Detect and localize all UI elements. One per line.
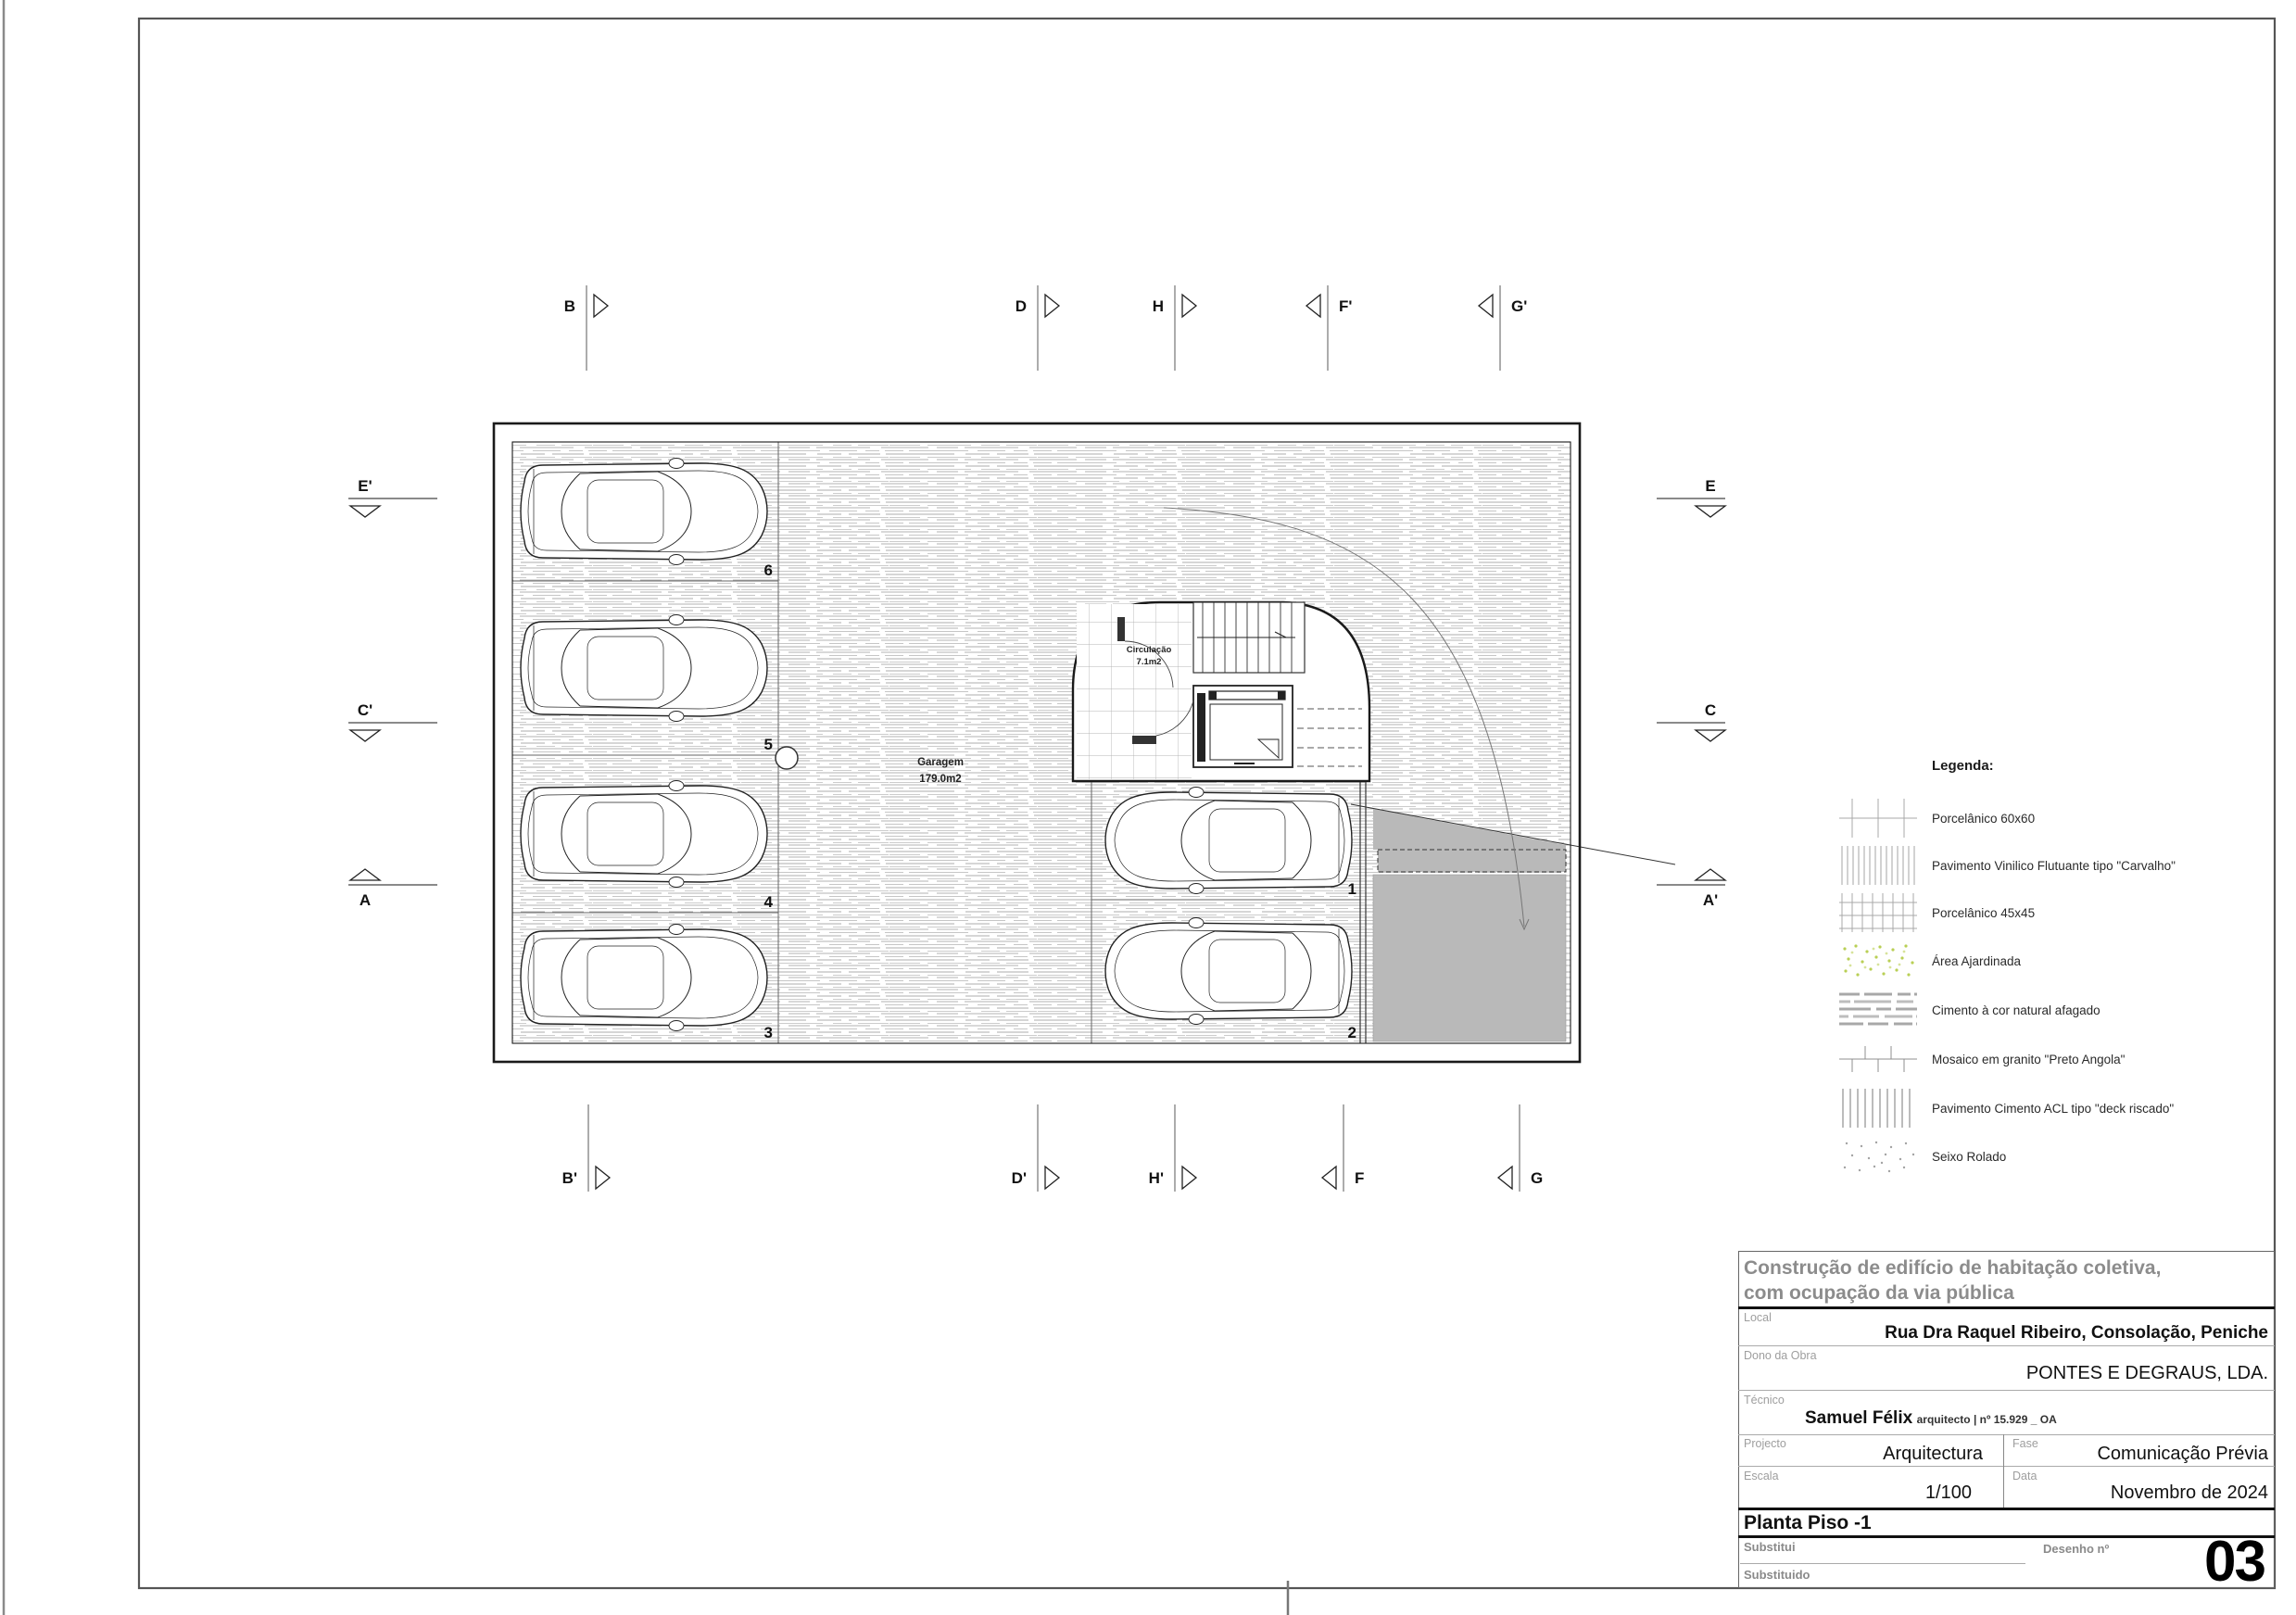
section-marker-E-prime: E': [348, 477, 437, 517]
sheet-title: Planta Piso -1: [1744, 1512, 1872, 1534]
legend-item-label: Área Ajardinada: [1932, 954, 2021, 968]
scale-label: Escala: [1744, 1470, 1779, 1483]
car-spot-5: [521, 615, 767, 722]
local-label: Local: [1744, 1311, 1772, 1324]
owner-label: Dono da Obra: [1744, 1349, 1817, 1362]
drawing-sheet: 6 5 4 3 1 2 Garagem 179.0m2: [0, 0, 2296, 1615]
section-marker-F-prime: F': [1306, 285, 1352, 371]
svg-text:D': D': [1012, 1169, 1027, 1187]
spot-number: 4: [764, 893, 774, 911]
section-marker-B: B: [564, 285, 608, 371]
replaced-label: Substituido: [1744, 1568, 1810, 1582]
stair-core: Circulação 7.1m2: [1073, 602, 1369, 781]
car-spot-6: [521, 459, 767, 565]
legend-swatch-vinyl-plank: [1839, 846, 1917, 885]
svg-text:A: A: [360, 891, 371, 909]
section-marker-D-prime: D': [1012, 1104, 1059, 1192]
door-leaf: [1132, 736, 1156, 744]
svg-text:C': C': [358, 701, 372, 719]
section-marker-E: E: [1657, 477, 1725, 517]
section-marker-H: H: [1153, 285, 1196, 371]
section-marker-H-prime: H': [1149, 1104, 1196, 1192]
svg-text:G': G': [1511, 297, 1527, 315]
local-value: Rua Dra Raquel Ribeiro, Consolação, Peni…: [1807, 1323, 2268, 1344]
garage-label: Garagem: [917, 757, 964, 768]
svg-text:F: F: [1355, 1169, 1364, 1187]
svg-text:H: H: [1153, 297, 1164, 315]
drawing-number-label: Desenho nº: [2043, 1542, 2109, 1556]
legend-item-label: Porcelânico 60x60: [1932, 812, 2035, 826]
date-value: Novembro de 2024: [2038, 1483, 2268, 1504]
date-label: Data: [2012, 1470, 2037, 1483]
legend-item-label: Pavimento Cimento ACL tipo "deck riscado…: [1932, 1102, 2174, 1116]
car-spot-1: [1105, 788, 1352, 894]
svg-text:G: G: [1531, 1169, 1543, 1187]
legend-item-label: Seixo Rolado: [1932, 1150, 2006, 1164]
svg-text:B: B: [564, 297, 575, 315]
spot-number: 1: [1348, 880, 1356, 898]
legend-swatch-deck: [1839, 1089, 1917, 1128]
technician-label: Técnico: [1744, 1394, 1785, 1407]
spot-number: 2: [1348, 1024, 1356, 1041]
section-marker-A-prime: A': [1657, 869, 1725, 909]
section-marker-C-prime: C': [348, 701, 437, 741]
spot-number: 3: [764, 1024, 773, 1041]
section-marker-F: F: [1322, 1104, 1364, 1192]
legend-swatch-cement: [1839, 990, 1917, 1029]
svg-text:D: D: [1016, 297, 1027, 315]
column: [776, 747, 798, 769]
car-spot-4: [521, 781, 767, 888]
legend-swatch-garden: [1839, 941, 1917, 980]
circulation-area-label: 7.1m2: [1137, 657, 1162, 667]
project-label: Projecto: [1744, 1437, 1786, 1450]
section-marker-B-prime: B': [562, 1104, 610, 1192]
legend-swatch-pebble: [1839, 1137, 1917, 1176]
legend-item-label: Cimento à cor natural afagado: [1932, 1003, 2100, 1017]
car-spot-2: [1105, 918, 1352, 1025]
section-marker-G-prime: G': [1479, 285, 1527, 371]
spot-number: 6: [764, 561, 773, 579]
drawing-number-value: 03: [2131, 1536, 2264, 1588]
car-spot-3: [521, 925, 767, 1031]
section-marker-G: G: [1498, 1104, 1543, 1192]
section-marker-D: D: [1016, 285, 1059, 371]
elevator: [1193, 686, 1293, 767]
technician-credentials: arquitecto | nº 15.929 _ OA: [1917, 1413, 2057, 1426]
svg-text:C: C: [1705, 701, 1716, 719]
technician-name: Samuel Félix: [1805, 1408, 1912, 1428]
section-marker-A: A: [348, 869, 437, 909]
legend-item-label: Porcelânico 45x45: [1932, 906, 2035, 920]
svg-text:E': E': [358, 477, 372, 495]
owner-value: PONTES E DEGRAUS, LDA.: [1807, 1363, 2268, 1384]
project-value: Arquitectura: [1805, 1444, 1983, 1465]
svg-text:A': A': [1703, 891, 1718, 909]
legend-title: Legenda:: [1932, 758, 1994, 774]
replaces-label: Substitui: [1744, 1540, 1796, 1554]
project-description-line1: Construção de edifício de habitação cole…: [1744, 1255, 2268, 1281]
ramp: [1373, 809, 1566, 1041]
phase-value: Comunicação Prévia: [2038, 1444, 2268, 1465]
legend-item-label: Pavimento Vinilico Flutuante tipo "Carva…: [1932, 859, 2176, 873]
legend-item-label: Mosaico em granito "Preto Angola": [1932, 1053, 2125, 1066]
circulation-label: Circulação: [1127, 645, 1172, 655]
svg-text:B': B': [562, 1169, 577, 1187]
phase-label: Fase: [2012, 1437, 2038, 1450]
legend-swatch-porcelain-45: [1839, 893, 1917, 932]
door-leaf: [1117, 617, 1125, 641]
stairs: [1193, 602, 1305, 673]
project-description-line2: com ocupação da via pública: [1744, 1281, 2268, 1306]
legend-swatch-porcelain-60: [1839, 799, 1917, 838]
svg-text:E: E: [1705, 477, 1715, 495]
section-marker-C: C: [1657, 701, 1725, 741]
scale-value: 1/100: [1842, 1483, 1972, 1504]
legend-swatch-granite-mosaic: [1839, 1040, 1917, 1079]
garage-area-label: 179.0m2: [919, 774, 961, 785]
spot-number: 5: [764, 736, 773, 753]
svg-text:H': H': [1149, 1169, 1164, 1187]
svg-text:F': F': [1339, 297, 1352, 315]
